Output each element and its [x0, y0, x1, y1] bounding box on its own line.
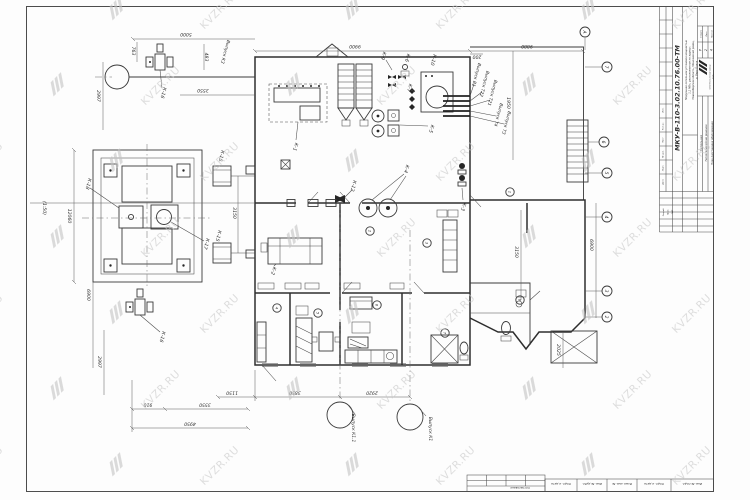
kvzr-text-watermark: KVZR.RU [139, 64, 183, 108]
kvzr-logo-watermark [340, 0, 364, 20]
unit-k1 [269, 84, 327, 140]
tag-k18: К-18 [84, 178, 93, 190]
tag-k17: К-17 [202, 238, 211, 250]
kvzr-text-watermark: KVZR.RU [670, 292, 714, 336]
strip-cell-3: Взам. инв. № [612, 482, 632, 486]
dim-5000: 5000 [180, 31, 192, 37]
dim-2920: 2920 [366, 390, 378, 396]
dim-2997-bottom: 2997 [96, 356, 102, 368]
kvzr-text-watermark: KVZR.RU [434, 292, 478, 336]
stamp-rev-podp: Подп. [663, 165, 665, 172]
dim-3550-top: 3550 [197, 87, 209, 93]
dim-483: 483 [203, 53, 209, 62]
kvzr-text-watermark: KVZR.RU [670, 0, 714, 32]
stamp-object-line-1: Модульная котельная установка мощностью [684, 40, 688, 100]
strip-cell-1: Подп. и дата [551, 482, 571, 486]
stamp-sig-razrab: Разраб. [662, 208, 665, 217]
outlet-t21: Выпуск Т21 [486, 79, 499, 107]
kvzr-text-watermark: KVZR.RU [611, 216, 655, 260]
kvzr-logo-watermark [281, 224, 305, 248]
stamp-company-line-1: ООО Котельный завод [709, 64, 712, 89]
kvzr-text-watermark: KVZR.RU [198, 292, 242, 336]
table-and-chairs [312, 332, 340, 351]
stamp-sheets-header: Листов [711, 29, 713, 39]
tag-k12: К-12 [349, 180, 358, 192]
valve-assembly-bottom [126, 289, 160, 332]
window-tag-boxes [258, 283, 404, 289]
room-numbers: 1 2 3 4 5 6 7 8 [273, 188, 524, 337]
pumps-k4 [359, 174, 406, 217]
kvzr-logo-watermark [340, 300, 364, 324]
tag-k5: К-5 [427, 124, 435, 133]
stamp-object-line-4: д. Верх-Балта [695, 60, 699, 80]
kvzr-logo-watermark [340, 148, 364, 172]
kvzr-logo-watermark [576, 0, 600, 20]
kvzr-logo-watermark [45, 224, 69, 248]
axis-bubble-6: 6 [600, 141, 606, 144]
dim-4950: 4950 [184, 421, 196, 427]
outlet-v1: Выпуск В1 [470, 62, 482, 87]
kvzr-logo-watermark [576, 452, 600, 476]
kvzr-logo-watermark [104, 300, 128, 324]
kvzr-text-watermark: KVZR.RU [139, 368, 183, 412]
axis-bubble-2: 2 [603, 316, 609, 319]
outdoor-foundation-pad [82, 144, 212, 288]
kvzr-text-watermark: KVZR.RU [198, 444, 242, 488]
room-number-2: 2 [368, 230, 373, 233]
kvzr-text-watermark: KVZR.RU [198, 0, 242, 32]
kvzr-text-watermark: KVZR.RU [434, 0, 478, 32]
storage-rack [437, 210, 458, 272]
stamp-rev-koluch: Кол.уч. [663, 122, 665, 130]
strip-cell-2: Инв. № дубл. [582, 482, 602, 486]
kitchen-counter [345, 322, 397, 363]
kvzr-text-watermark: KVZR.RU [375, 216, 419, 260]
stamp-sheet-value: 2 [704, 49, 708, 51]
kvzr-logo-watermark [45, 72, 69, 96]
stamp-sheets-value: 4 [709, 49, 713, 51]
kvzr-text-watermark: KVZR.RU [434, 140, 478, 184]
room-number-3: 3 [425, 242, 430, 245]
kvzr-text-watermark: KVZR.RU [434, 444, 478, 488]
outlet-t3: Выпуск Т3 [500, 110, 512, 135]
sewer-wells [30, 203, 426, 430]
dim-1150: 1150 [226, 390, 238, 396]
outlet-t22: Выпуск Т22 [478, 70, 491, 98]
toilet-1 [460, 342, 468, 360]
strip-cell-5: Инв. № подл. [682, 482, 702, 486]
tag-k1: К-1 [291, 142, 299, 151]
kvzr-text-watermark: KVZR.RU [0, 292, 6, 336]
tag-k10: К-10 [429, 54, 438, 66]
boilers [338, 64, 372, 126]
dim-6900-left: 6900 [85, 289, 91, 301]
watermark-layer: KVZR.RUKVZR.RUKVZR.RUKVZR.RUKVZR.RUKVZR.… [0, 0, 750, 488]
outlet-k3: Выпуск К3 [219, 39, 231, 64]
dim-6900-right: 6900 [588, 239, 594, 251]
axis-bubble-4: 4 [603, 216, 609, 219]
dim-9900: 9900 [349, 43, 361, 49]
stamp-sheet-name: План расстановки оборудования [710, 121, 714, 165]
kvzr-logo-watermark [517, 376, 541, 400]
dim-1950: 1950 [505, 97, 511, 109]
strip-cell-4: Подп. и дата [644, 482, 664, 486]
kvzr-logo-watermark [576, 300, 600, 324]
stamp-doc-number: МКУ-В-110-3.02.10.76.00-ТМ [674, 44, 682, 150]
dimension-texts: 5000 763 483 3550 2997 9900 9880 200 195… [41, 31, 594, 427]
kvzr-logo-watermark [517, 72, 541, 96]
kvzr-text-watermark: KVZR.RU [611, 368, 655, 412]
dim-12060: 12060 [66, 209, 72, 224]
pumps-k3 [458, 163, 466, 200]
dim-3150-tanks: 3150 [231, 207, 237, 219]
axis-bubble-3: 3 [603, 290, 609, 293]
bed [296, 306, 312, 362]
stamp-stage-value: Р [699, 49, 703, 51]
kvzr-logo-watermark [517, 224, 541, 248]
strip-agreed: Согласовано [510, 486, 530, 490]
outlet-k1: Выпуск К1 [427, 417, 433, 442]
kvzr-logo-watermark [45, 376, 69, 400]
room-number-1: 1 [508, 191, 513, 193]
kvzr-logo-watermark [104, 0, 128, 20]
kvzr-text-watermark: KVZR.RU [375, 368, 419, 412]
vent-chamber-x-box [431, 335, 458, 363]
tag-k16-bottom: К-16 [158, 331, 167, 343]
kvzr-text-watermark: KVZR.RU [198, 140, 242, 184]
drawing-sheet: 5000 763 483 3550 2997 9900 9880 200 195… [0, 0, 750, 500]
dim-763: 763 [130, 47, 136, 56]
kvzr-text-watermark: KVZR.RU [0, 0, 6, 32]
kvzr-text-watermark: KVZR.RU [0, 444, 6, 488]
stamp-rev-izm: Изм. [663, 107, 665, 112]
stamp-sig-gip: ГИП [672, 209, 674, 214]
tag-k9: К-9 [379, 51, 387, 60]
stamp-company-line-2: «РЭП» [713, 73, 715, 81]
tag-k2: К-2 [269, 266, 277, 275]
kvzr-text-watermark: KVZR.RU [611, 64, 655, 108]
stamp-rev-dok: № док. [662, 150, 665, 159]
dim-200: 200 [473, 54, 482, 60]
scale-note: (1:50) [41, 201, 47, 215]
outdoor-equipment [95, 44, 255, 332]
tank-k15-lower [213, 243, 255, 263]
kvzr-text-watermark: KVZR.RU [0, 140, 6, 184]
room-number-5: 5 [316, 312, 321, 315]
title-block: МКУ-В-110-3.02.10.76.00-ТМ Модульная кот… [660, 7, 716, 233]
outlet-k11: Выпуск К1.1 [350, 414, 356, 443]
stamp-sheet-header: Лист [706, 31, 708, 38]
stairs-ladder [567, 120, 588, 182]
room-number-6: 6 [375, 304, 380, 307]
dim-3150-room: 3150 [513, 246, 519, 258]
tag-k6: К-6 [403, 53, 411, 62]
stamp-rev-data: Дата [663, 179, 665, 186]
dim-2997-top: 2997 [95, 90, 101, 102]
room-number-4: 4 [275, 307, 280, 310]
wardrobe [257, 322, 266, 362]
kvzr-text-watermark: KVZR.RU [670, 444, 714, 488]
dim-3550-bottom: 3550 [199, 402, 211, 408]
kvzr-logo-watermark [281, 72, 305, 96]
axis-bubble-5: 5 [603, 172, 609, 175]
dim-9880: 9880 [521, 43, 533, 49]
kvzr-logo-watermark [104, 452, 128, 476]
stamp-sig-prov: Пров. [668, 209, 670, 215]
tag-k15-lower: К-15 [214, 230, 223, 242]
stamp-object-line-3: Новосибирская область, Мошковский район, [691, 40, 695, 99]
kvzr-text-watermark: KVZR.RU [139, 216, 183, 260]
axis-bubble-7: 7 [603, 66, 609, 69]
dim-2025: 2025 [555, 344, 561, 356]
fan-k12 [281, 160, 352, 203]
tag-k4: К-4 [402, 164, 410, 173]
stamp-object-line-2: 1,1 МВт, расположенная по адресу: [688, 46, 692, 94]
sofa [350, 297, 372, 309]
kvzr-logo-watermark [340, 452, 364, 476]
stamp-stage-header: Стадия [701, 29, 703, 38]
axis-bubble-a: А [581, 29, 587, 33]
stamp-rev-list: Лист [663, 137, 665, 144]
pump-group-k5 [372, 110, 428, 137]
sheet-frame [27, 7, 714, 492]
kvzr-logo-watermark [104, 148, 128, 172]
company-logo [699, 60, 707, 76]
unit-k2 [261, 238, 322, 266]
